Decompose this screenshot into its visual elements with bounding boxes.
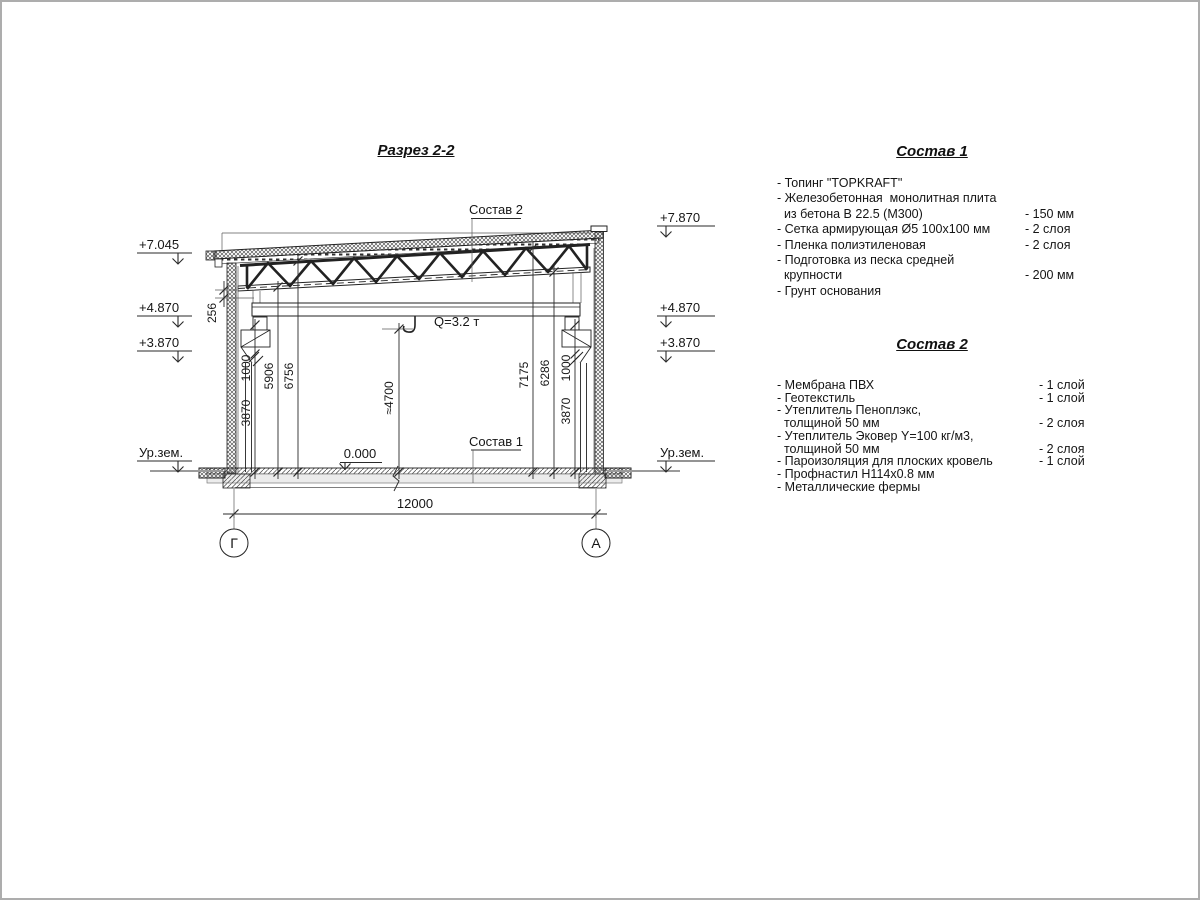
spec-row: - Металлические фермы xyxy=(777,481,1087,494)
dim-right-3870: 3870 xyxy=(559,397,573,424)
elev-right-ground: Ур.зем. xyxy=(660,445,704,460)
zero-level-label: 0.000 xyxy=(344,446,377,461)
dim-right-7175: 7175 xyxy=(517,361,531,388)
spec-block-1: Состав 1 - Топинг "TOPKRAFT" - Железобет… xyxy=(777,143,1087,299)
dim-span-12000: 12000 xyxy=(397,496,433,511)
foundation-left xyxy=(223,474,250,488)
crane-capacity-label: Q=3.2 т xyxy=(434,314,479,329)
elev-right-7870: +7.870 xyxy=(660,210,700,225)
spec-row: - Грунт основания xyxy=(777,284,1087,299)
dim-left-6756: 6756 xyxy=(282,362,296,389)
floor-slab xyxy=(150,466,680,491)
dim-hook-4700: ≈4700 xyxy=(382,381,396,415)
roof-drip-edge xyxy=(215,259,222,267)
dim-right-1000: 1000 xyxy=(559,354,573,381)
dim-left-3870: 3870 xyxy=(239,399,253,426)
crane-hook xyxy=(404,316,416,332)
elev-left-ground: Ур.зем. xyxy=(139,445,183,460)
spec-row: крупности- 200 мм xyxy=(777,268,1087,283)
callout-sostav1: Состав 1 xyxy=(469,434,523,449)
spec-row: - Мембрана ПВХ- 1 слой xyxy=(777,379,1087,392)
spec-row: - Профнастил Н114х0.8 мм xyxy=(777,468,1087,481)
footing-ledge-right xyxy=(605,468,631,478)
spec-block-2: Состав 2 - Мембрана ПВХ- 1 слой - Геотек… xyxy=(777,336,1087,493)
axis-letter-left: Г xyxy=(230,535,238,551)
elev-right-3870: +3.870 xyxy=(660,335,700,350)
dim-roof-256: 256 xyxy=(205,303,219,323)
roof-edge-cap xyxy=(206,251,216,260)
spec2-title: Состав 2 xyxy=(777,336,1087,353)
elev-right-4870: +4.870 xyxy=(660,300,700,315)
spec-row: - Топинг "TOPKRAFT" xyxy=(777,176,1087,191)
left-wall xyxy=(227,263,236,473)
spec2-rows: - Мембрана ПВХ- 1 слой - Геотекстиль- 1 … xyxy=(777,379,1087,493)
axis-letter-right: А xyxy=(591,535,601,551)
spec-row: - Утеплитель Эковер Y=100 кг/м3, xyxy=(777,430,1087,443)
parapet-cap xyxy=(591,226,607,232)
spec1-title: Состав 1 xyxy=(777,143,1087,160)
dim-left-1000: 1000 xyxy=(239,354,253,381)
spec-row: толщиной 50 мм- 2 слоя xyxy=(777,417,1087,430)
spec-row: из бетона В 22.5 (М300)- 150 мм xyxy=(777,207,1087,222)
drawing-sheet: Разрез 2-2 xyxy=(0,0,1200,900)
spec-row: - Подготовка из песка средней xyxy=(777,253,1087,268)
elevation-marks-right: +7.870 +4.870 +3.870 Ур.зем. xyxy=(657,210,715,472)
footing-ledge-left xyxy=(199,468,225,478)
elevation-marks-left: +7.045 +4.870 +3.870 Ур.зем. xyxy=(137,237,192,472)
spec1-title-text: Состав 1 xyxy=(896,143,968,160)
spec2-title-text: Состав 2 xyxy=(896,336,968,353)
spec-row: - Железобетонная монолитная плита xyxy=(777,191,1087,206)
spec1-rows: - Топинг "TOPKRAFT" - Железобетонная мон… xyxy=(777,176,1087,299)
callout-sostav2: Состав 2 xyxy=(469,202,523,217)
elev-left-3870: +3.870 xyxy=(139,335,179,350)
dim-left-5906: 5906 xyxy=(262,362,276,389)
dim-right-6286: 6286 xyxy=(538,359,552,386)
right-wall xyxy=(595,232,604,474)
elev-left-7045: +7.045 xyxy=(139,237,179,252)
foundation-right xyxy=(579,474,606,488)
elev-left-4870: +4.870 xyxy=(139,300,179,315)
spec-row: - Пленка полиэтиленовая- 2 слоя xyxy=(777,238,1087,253)
spec-row: - Сетка армирующая Ø5 100x100 мм- 2 слоя xyxy=(777,222,1087,237)
span-dimension: 12000 Г А xyxy=(220,489,610,557)
